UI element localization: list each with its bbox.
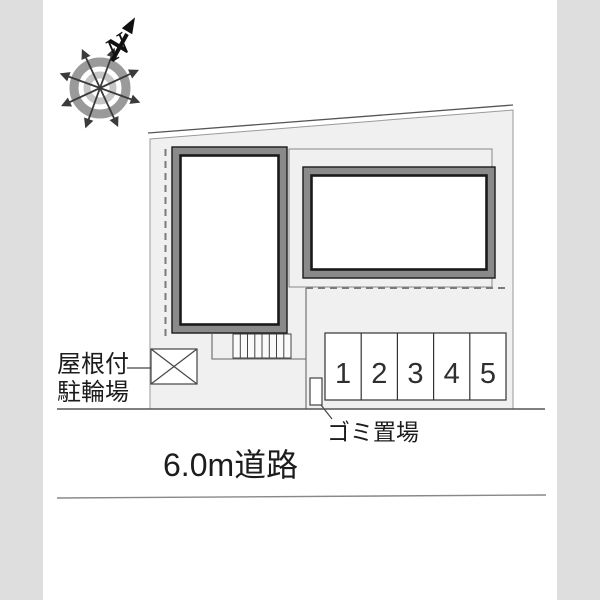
building-left [172,147,287,333]
bicycle-parking-label-line2: 駐輪場 [57,379,129,406]
parking-area: 1 2 3 4 5 [325,333,506,400]
garbage-box [310,378,322,405]
parking-space-number: 3 [407,358,423,390]
parking-space-number: 2 [371,358,387,390]
bicycle-parking-box [151,349,197,384]
site-plan-image: N [0,0,600,600]
parking-space-number: 1 [335,358,351,390]
site-plan-svg: N [0,0,600,600]
parking-space-number: 5 [480,358,496,390]
entrance-steps [233,334,291,358]
road-label: 6.0m道路 [163,447,298,483]
building-right [303,167,495,278]
garbage-label: ゴミ置場 [327,419,419,445]
parking-space-number: 4 [444,358,460,390]
bicycle-parking-label-line1: 屋根付 [57,351,129,378]
